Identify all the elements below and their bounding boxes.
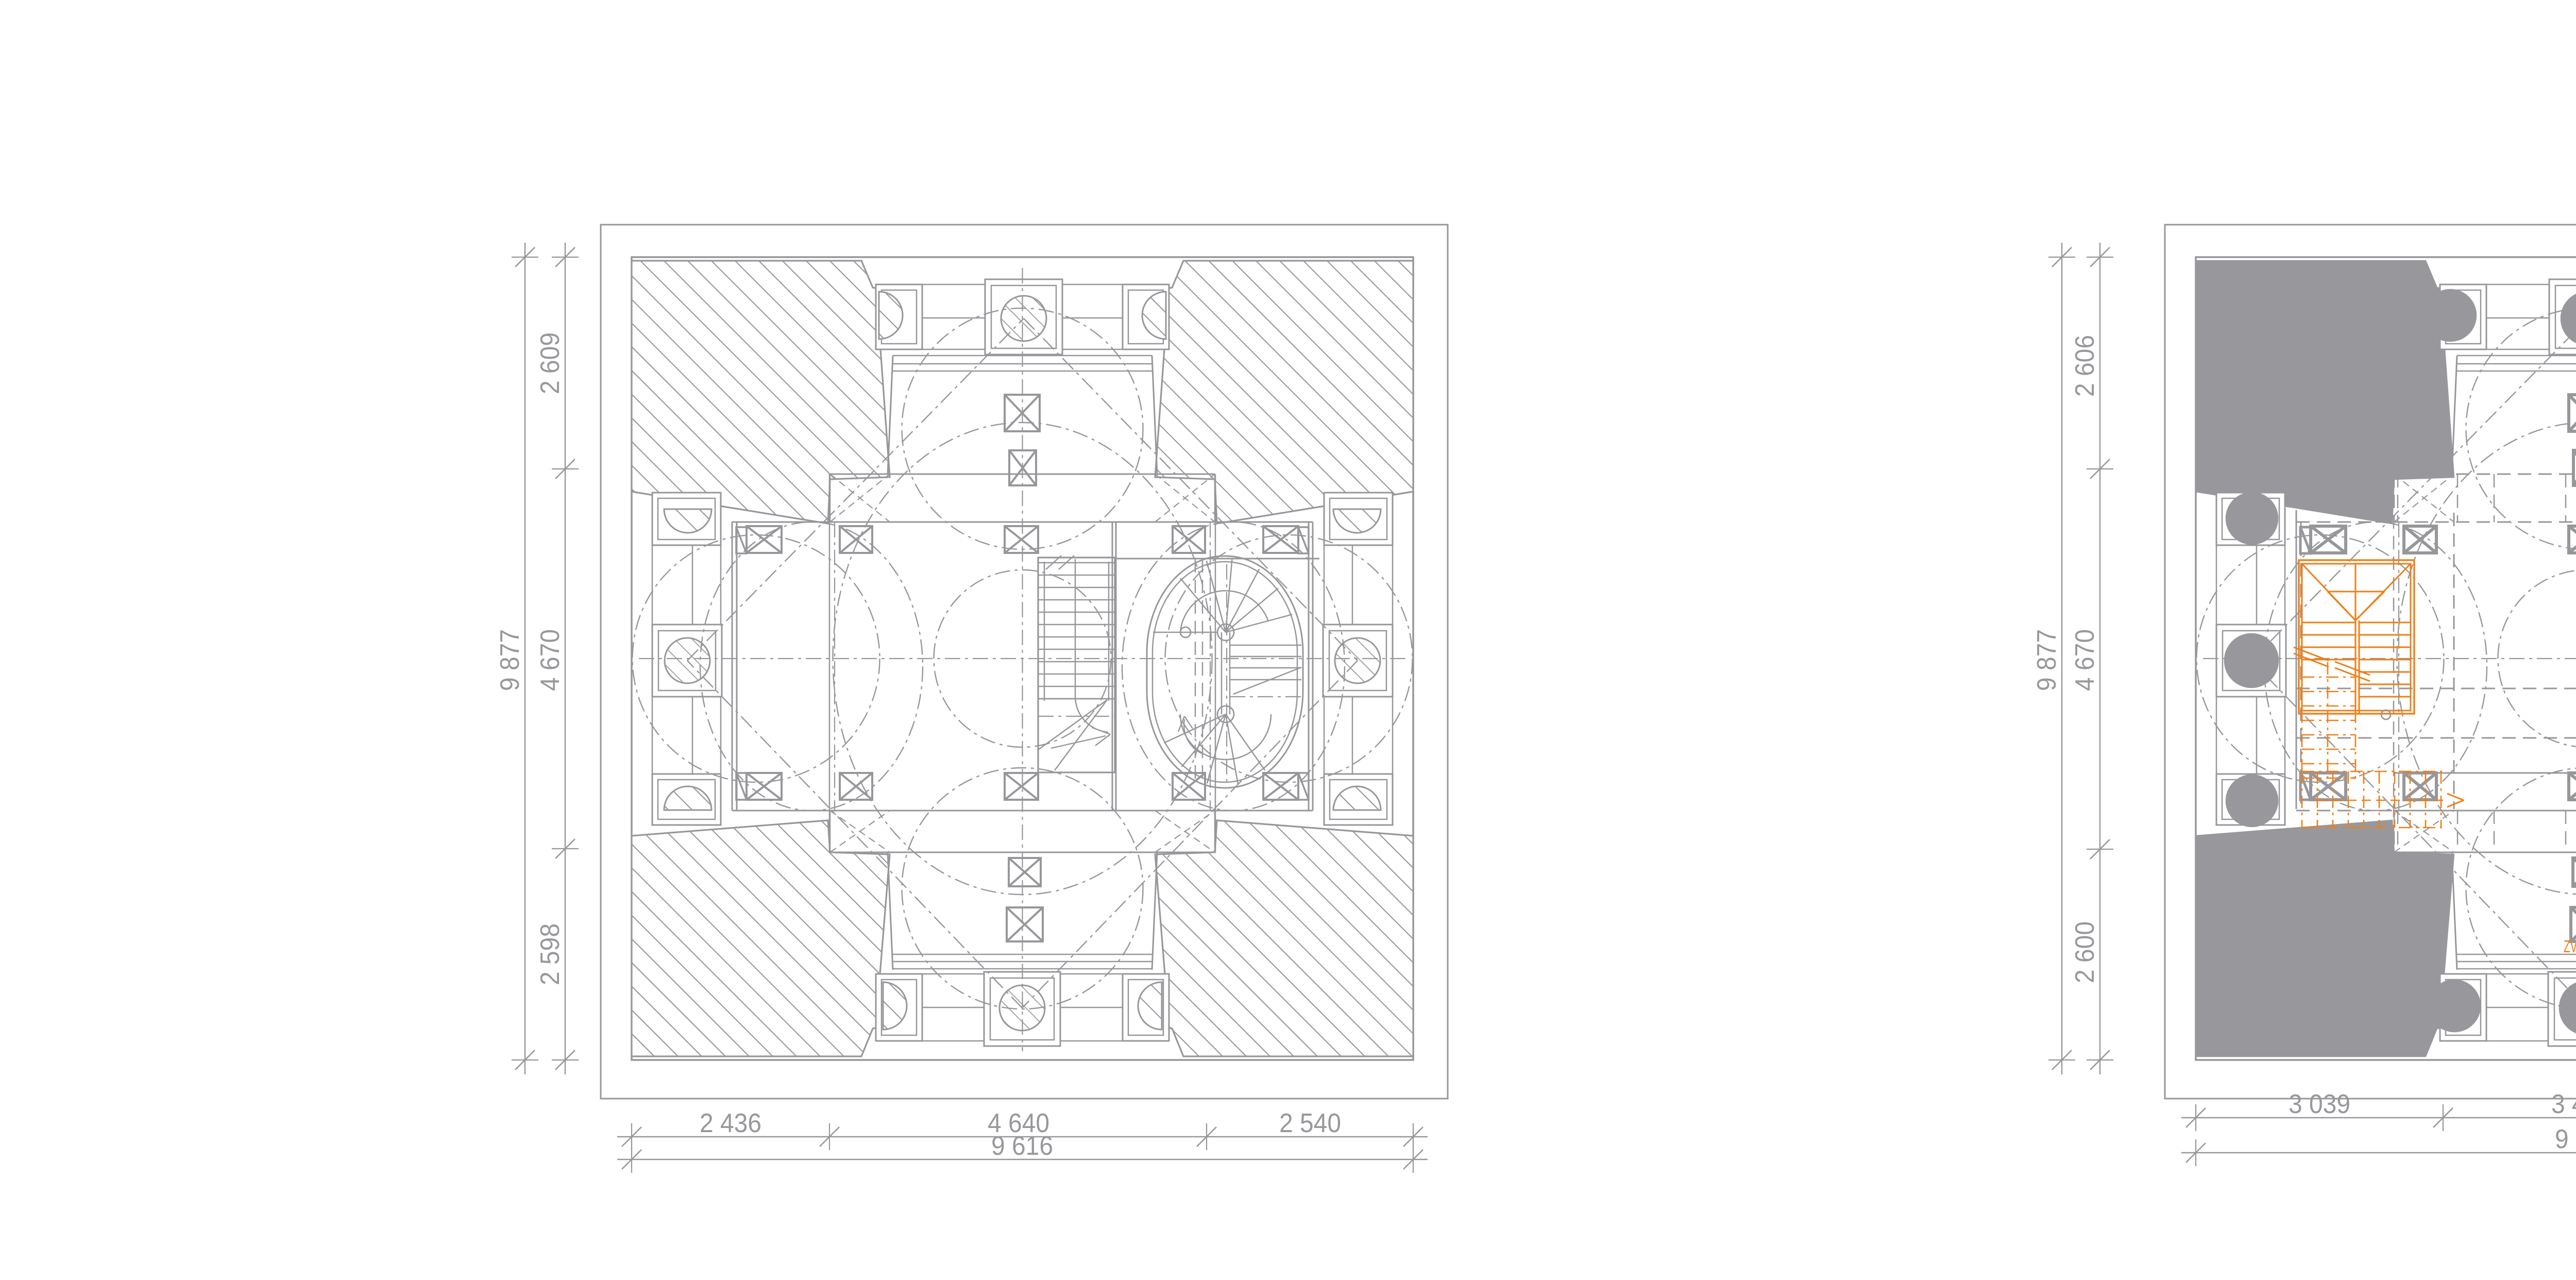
svg-text:2 609: 2 609 [535,332,565,394]
svg-text:ZVONICE: ZVONICE [2564,937,2576,956]
svg-text:9 877: 9 877 [2032,629,2062,691]
svg-text:2 540: 2 540 [1279,1108,1341,1138]
svg-text:9 616: 9 616 [991,1131,1053,1161]
svg-text:9 616: 9 616 [2555,1124,2576,1154]
svg-text:4 670: 4 670 [535,629,565,691]
svg-text:4 670: 4 670 [2070,629,2100,691]
svg-text:2 598: 2 598 [535,923,565,985]
svg-text:2 606: 2 606 [2070,335,2100,397]
svg-text:2 436: 2 436 [700,1108,761,1138]
svg-text:3 434: 3 434 [2551,1089,2576,1119]
svg-text:2 600: 2 600 [2070,921,2100,983]
svg-text:9 877: 9 877 [495,629,525,691]
svg-text:3 039: 3 039 [2289,1089,2350,1119]
